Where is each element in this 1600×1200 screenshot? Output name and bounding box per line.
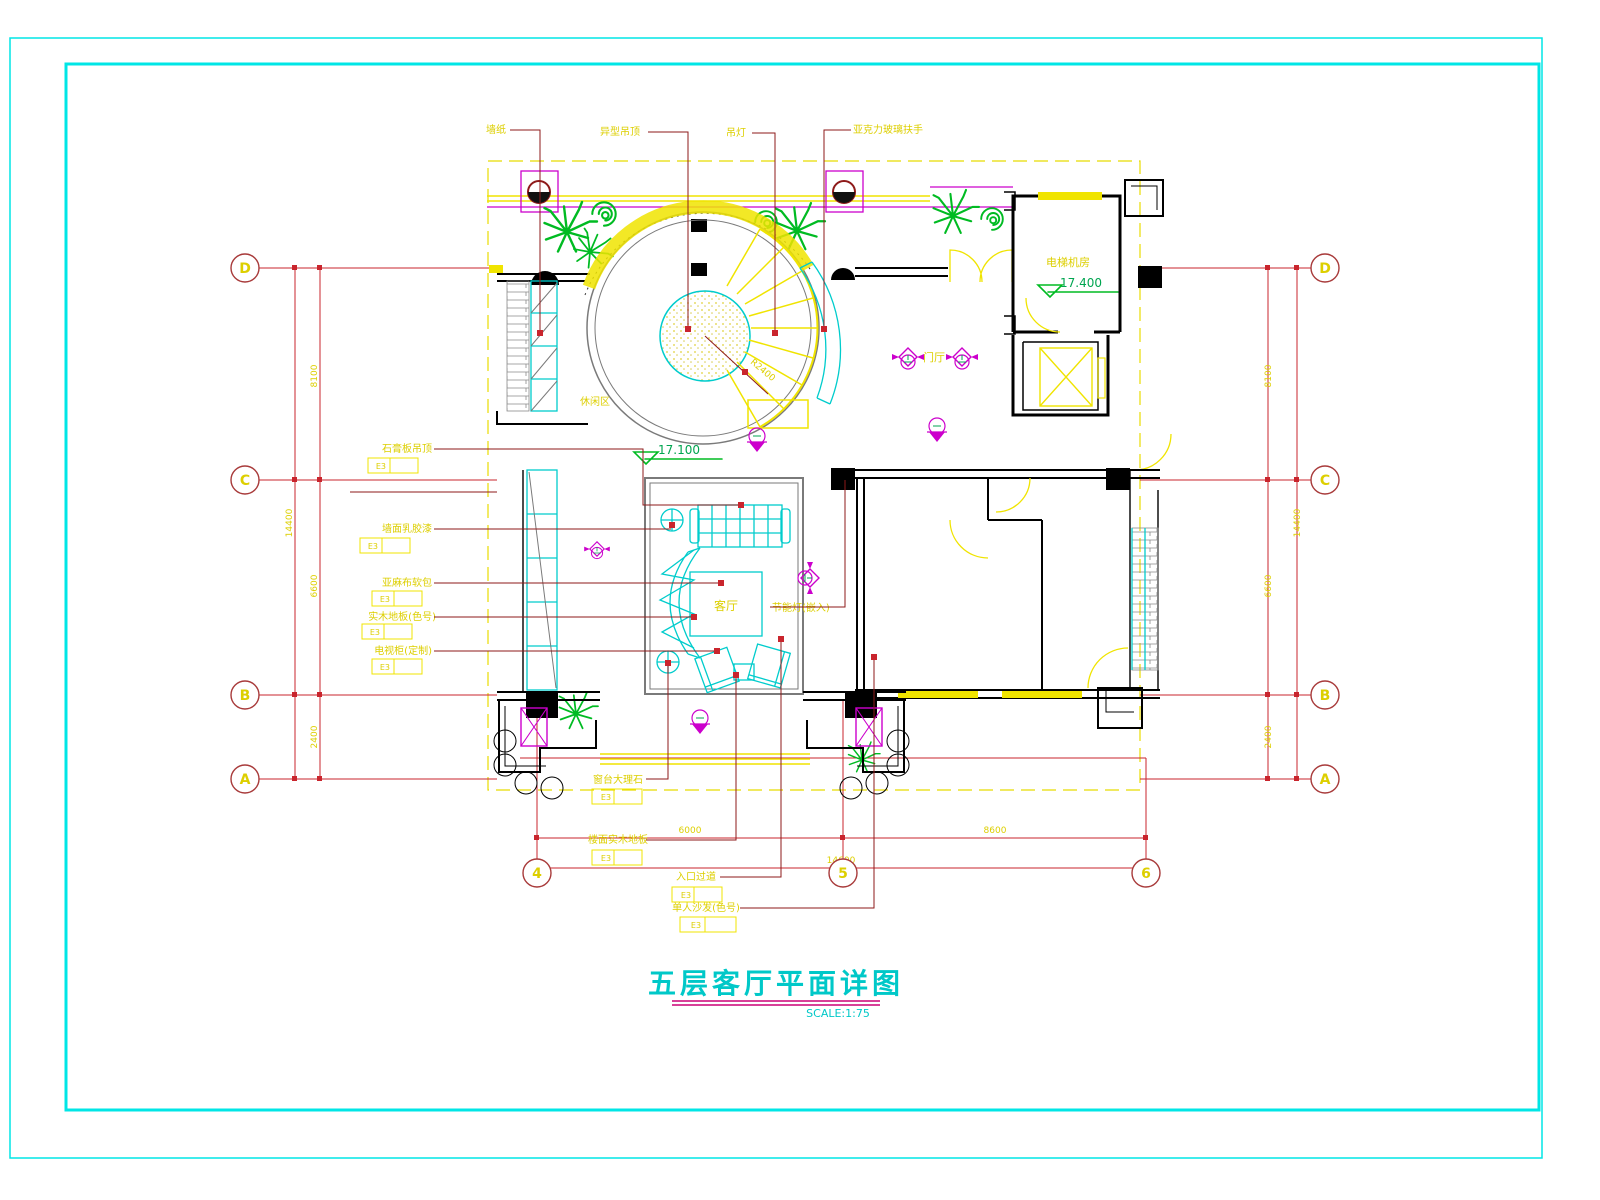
annotation-label: 楼面实木地板 bbox=[588, 833, 648, 846]
column bbox=[1138, 266, 1162, 288]
annotation-label: 亚克力玻璃扶手 bbox=[853, 123, 923, 136]
grid-label-5: 5 bbox=[838, 866, 848, 882]
grid-label-6: 6 bbox=[1141, 866, 1151, 882]
grid-bubbles: D C B A D C B A 4 5 6 bbox=[231, 254, 1339, 887]
level-value: 17.100 bbox=[658, 443, 700, 457]
dim-left-seg3: 2400 bbox=[310, 725, 320, 748]
living-room-label: 客厅 bbox=[714, 598, 738, 613]
left-wall-upper bbox=[497, 274, 590, 424]
annotation-label: 异型吊顶 bbox=[600, 125, 640, 138]
annotation-label: 墙纸 bbox=[486, 123, 506, 136]
dim-left-seg2: 6600 bbox=[310, 574, 320, 597]
elevation-marker-icon bbox=[927, 418, 947, 442]
plants bbox=[545, 190, 1003, 772]
elevation-marker-icon bbox=[584, 542, 610, 559]
dim-bottom-seg2: 8600 bbox=[984, 826, 1007, 836]
window-strip bbox=[489, 265, 503, 273]
annotation-tag: E3 bbox=[370, 628, 380, 637]
annotation-tag: E3 bbox=[691, 921, 701, 930]
window-strip bbox=[1038, 192, 1102, 200]
threshold-band bbox=[600, 754, 810, 764]
title-block: 五层客厅平面详图 SCALE:1:75 bbox=[648, 967, 904, 1020]
window-strip bbox=[1002, 691, 1082, 698]
dim-left-seg1: 8100 bbox=[310, 364, 320, 387]
machine-room-label: 电梯机房 bbox=[1046, 255, 1090, 269]
elevation-marker-icon bbox=[892, 348, 924, 369]
grid-label-C-right: C bbox=[1320, 473, 1330, 489]
column bbox=[831, 468, 855, 490]
column bbox=[1106, 468, 1130, 490]
annotation-label: 吊灯 bbox=[726, 127, 746, 139]
plant-icon bbox=[981, 208, 1003, 230]
window-strip bbox=[898, 691, 978, 698]
annotation-tag: E3 bbox=[380, 663, 390, 672]
annotations-bottom: 窗台大理石 E3 楼面实木地板 E3 入口过道 E3 单人沙发(色号) E3 bbox=[588, 636, 877, 932]
annotation-tag: E3 bbox=[376, 462, 386, 471]
balcony-corner-right bbox=[803, 692, 909, 799]
door-arc bbox=[950, 478, 1128, 688]
annotation-label: 实木地板(色号) bbox=[368, 610, 436, 623]
dim-bottom-seg1: 6000 bbox=[679, 826, 702, 836]
ceiling-fixture-block bbox=[691, 263, 707, 276]
elevation-marker-icon bbox=[946, 348, 978, 369]
double-door-arc bbox=[950, 250, 1012, 282]
title-underline bbox=[672, 1001, 880, 1005]
annotation-label: 墙面乳胶漆 bbox=[382, 522, 432, 535]
balcony-corner-left bbox=[494, 692, 600, 799]
elevation-marker-icon bbox=[798, 562, 819, 594]
annotation-tag: E3 bbox=[601, 854, 611, 863]
annotation-label: 窗台大理石 bbox=[593, 773, 643, 786]
foyer-label: 门厅 bbox=[923, 350, 945, 364]
elevation-marker-icon bbox=[747, 428, 767, 452]
annotation-tag: E3 bbox=[601, 793, 611, 802]
ceiling-fixture-block bbox=[691, 219, 707, 232]
level-value: 17.400 bbox=[1060, 276, 1102, 290]
annotation-tag: E3 bbox=[368, 542, 378, 551]
drawing-title: 五层客厅平面详图 bbox=[648, 967, 904, 1000]
dim-right-seg1: 8100 bbox=[1264, 364, 1274, 387]
left-wall-lower bbox=[523, 470, 557, 692]
grid-system: 8100 6600 2400 14400 8100 6600 2400 1440… bbox=[231, 254, 1339, 887]
level-mark-machine-room: 17.400 bbox=[1038, 276, 1118, 297]
dim-right-overall: 14400 bbox=[1293, 508, 1303, 537]
dim-left-overall: 14400 bbox=[285, 508, 295, 537]
leisure-label: 休闲区 bbox=[580, 395, 610, 408]
plant-icon bbox=[934, 190, 980, 233]
dim-right-seg2: 6600 bbox=[1264, 574, 1274, 597]
level-mark-atrium: 17.100 bbox=[634, 443, 722, 464]
floor-plan-canvas: 8100 6600 2400 14400 8100 6600 2400 1440… bbox=[0, 0, 1600, 1200]
right-rooms bbox=[831, 468, 1160, 728]
annotation-tag: E3 bbox=[380, 595, 390, 604]
annotation-tag: E3 bbox=[681, 891, 691, 900]
plant-icon bbox=[560, 692, 599, 728]
planter-pots bbox=[657, 509, 683, 673]
sofa-sectional bbox=[660, 548, 700, 658]
annotation-label: 单人沙发(色号) bbox=[672, 901, 740, 914]
elevator-shaft bbox=[1013, 335, 1108, 415]
annotation-label: 入口过道 bbox=[676, 870, 716, 883]
sofa-main bbox=[690, 505, 790, 547]
elevation-marker-icon bbox=[690, 710, 710, 734]
annotation-label: 石膏板吊顶 bbox=[382, 442, 432, 455]
half-round-column bbox=[831, 268, 855, 280]
annotation-label: 电视柜(定制) bbox=[374, 644, 432, 657]
machine-room-block: 电梯机房 bbox=[1004, 180, 1171, 470]
grid-label-A-right: A bbox=[1320, 772, 1331, 788]
dim-right-seg3: 2400 bbox=[1264, 725, 1274, 748]
grid-label-B-left: B bbox=[240, 688, 251, 704]
grid-label-B-right: B bbox=[1320, 688, 1331, 704]
drawing-scale: SCALE:1:75 bbox=[806, 1007, 870, 1020]
grid-label-D-right: D bbox=[1319, 261, 1331, 277]
grid-label-D-left: D bbox=[239, 261, 251, 277]
grid-label-C-left: C bbox=[240, 473, 250, 489]
annotation-label: 亚麻布软包 bbox=[382, 576, 432, 589]
grid-label-4: 4 bbox=[532, 866, 542, 882]
grid-label-A-left: A bbox=[240, 772, 251, 788]
